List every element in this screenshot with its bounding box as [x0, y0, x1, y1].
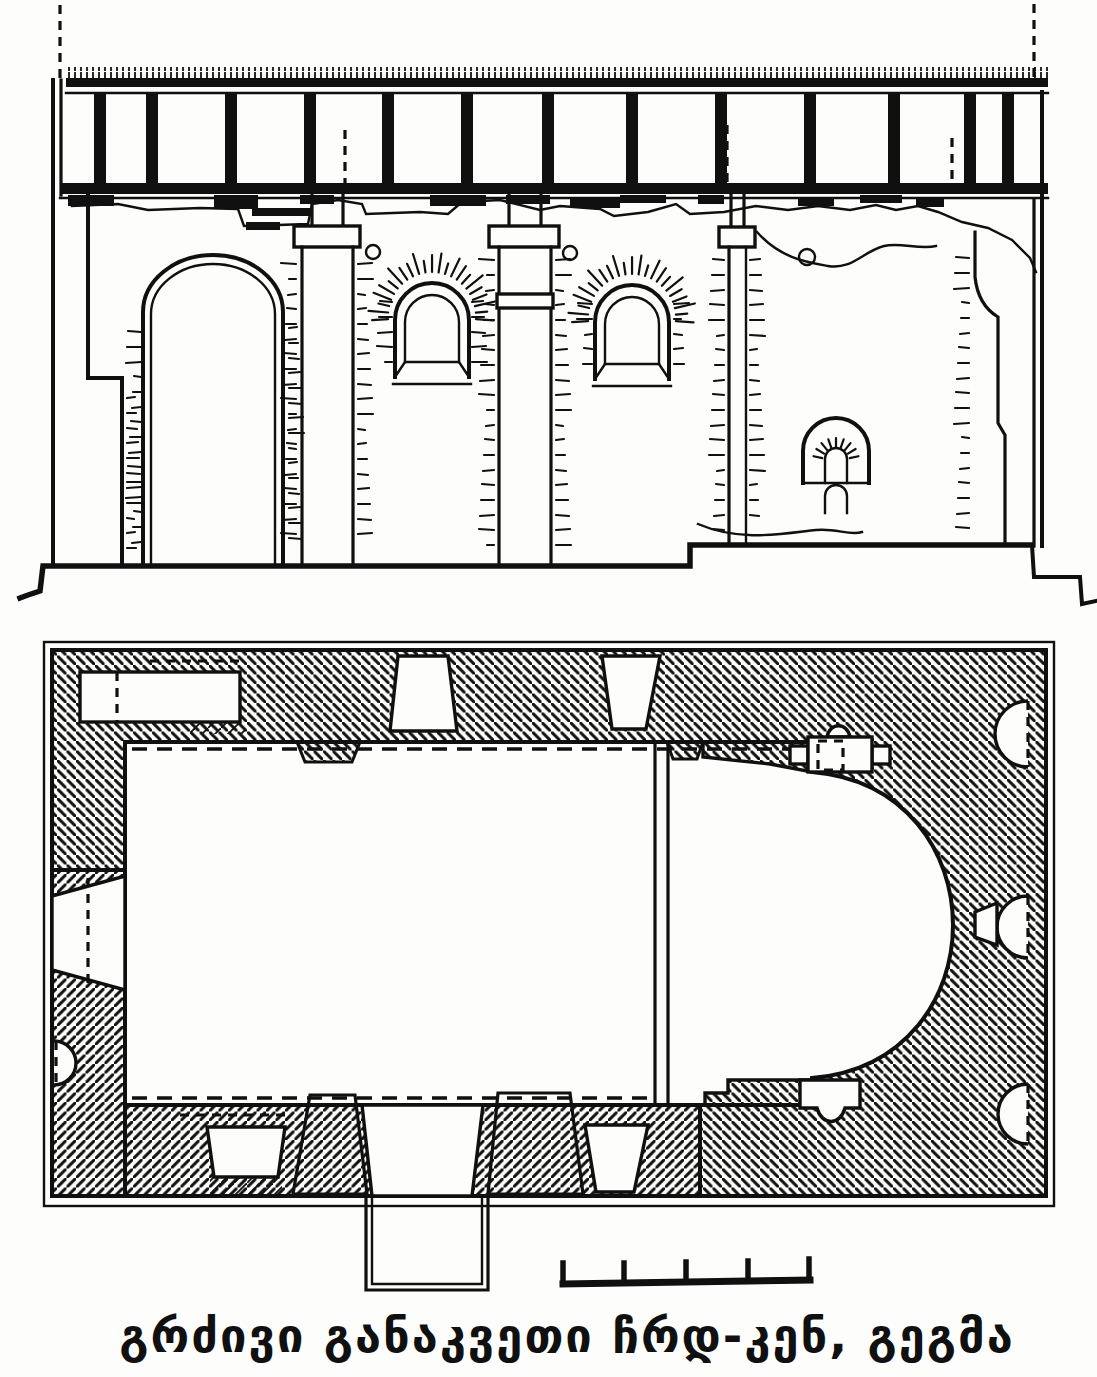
northwest-wall-niche: [80, 672, 240, 722]
drawing-sheet: გრძივი განაკვეთი ჩრდ-კენ, გეგმა: [0, 0, 1097, 1377]
nave-west-arch: [143, 255, 283, 564]
west-wall-section: [53, 80, 122, 566]
impost-block: [497, 294, 553, 308]
annex-porch: [366, 1196, 488, 1290]
north-window-1: [390, 656, 457, 731]
bema-step: [660, 1080, 812, 1105]
vault-dashed-lines: [132, 749, 800, 1115]
chancel-lines: [655, 742, 668, 1105]
niche-double-arch: [803, 418, 869, 513]
central-pier: [489, 195, 559, 564]
pilaster-c: [719, 195, 755, 543]
south-niche: [207, 1127, 285, 1177]
apse-east-window: [975, 903, 997, 945]
scale-bar: [563, 1259, 810, 1284]
roof-slab: [66, 67, 1048, 93]
longitudinal-section: [20, 4, 1096, 604]
gallery-beam: [60, 183, 1048, 194]
plaster-contour: [757, 232, 936, 267]
window-2: [593, 285, 671, 386]
gallery-posts: [60, 93, 1048, 198]
west-door: [52, 876, 125, 990]
caption: გრძივი განაკვეთი ჩრდ-კენ, გეგმა: [119, 1308, 1014, 1363]
south-door: [362, 1105, 483, 1196]
floor-line: [20, 545, 1096, 604]
floor-plan: [44, 642, 1054, 1290]
pilaster-a: [294, 195, 360, 564]
north-pilaster-1: [297, 742, 360, 762]
church-drawing: გრძივი განაკვეთი ჩრდ-კენ, გეგმა: [0, 0, 1097, 1377]
window-1: [393, 283, 471, 384]
